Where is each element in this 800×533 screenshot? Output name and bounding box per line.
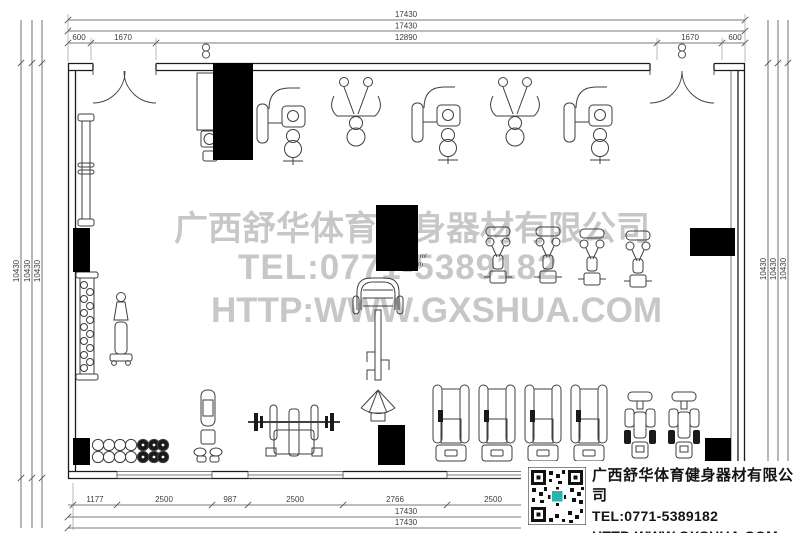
treadmill-icon [525, 385, 561, 461]
columns [73, 63, 735, 465]
dim-bottom-2500-c: 2500 [484, 495, 502, 504]
door-left [93, 71, 156, 103]
multi-station-rack-icon [353, 278, 403, 421]
treadmill-icon [571, 385, 607, 461]
dim-top-600-l: 600 [72, 33, 86, 42]
dim-top-17430-a: 17430 [395, 10, 418, 19]
exercise-bike-icon [624, 392, 656, 458]
dim-top-600-r: 600 [728, 33, 742, 42]
company-tel: TEL:0771-5389182 [592, 506, 800, 526]
column [73, 438, 90, 465]
dim-bottom-17430-b: 17430 [395, 518, 418, 527]
area-label-sup: m² [420, 254, 427, 260]
dim-bottom-2500-b: 2500 [286, 495, 304, 504]
door-marker-icon-left [202, 44, 209, 58]
dim-bottom-2766: 2766 [386, 495, 404, 504]
column [376, 205, 418, 271]
strength-machine-icon [564, 87, 612, 164]
seated-machine-icon [578, 229, 606, 285]
column [378, 425, 405, 465]
strength-machine-icon [257, 88, 305, 165]
column [213, 63, 253, 160]
dumbbell-rack-icon [92, 439, 168, 462]
seated-machine-icon [624, 231, 652, 287]
dim-top-1670-l: 1670 [114, 33, 132, 42]
seated-machine-icon [534, 227, 562, 283]
dim-left-10430-b: 10430 [23, 259, 32, 282]
dim-left-10430-a: 10430 [12, 259, 21, 282]
strength-machine-icon [491, 78, 540, 147]
dim-right-10430-a: 10430 [759, 257, 768, 280]
column [690, 228, 735, 256]
treadmill-icon [433, 385, 469, 461]
floor-plan-drawing: 17430 17430 600 1670 12890 1670 600 1043… [0, 0, 800, 533]
qr-code-icon [528, 467, 586, 525]
strength-machine-icon [332, 78, 381, 147]
floor-plan-page: 广西舒华体育健身器材有限公司 TEL:0771-5389182 HTTP:WWW… [0, 0, 800, 533]
dim-right-10430-c: 10430 [779, 257, 788, 280]
area-annotation: m² m [418, 254, 427, 268]
dim-top-17430-b: 17430 [395, 22, 418, 31]
heavy-bag-icon [110, 293, 132, 366]
bench-press-icon [248, 405, 340, 456]
door-marker-icon-right [678, 44, 685, 58]
company-url: HTTP:WWW.GXSHUA.COM [592, 526, 800, 533]
area-label-sub: m [418, 262, 423, 268]
dim-bottom-1177: 1177 [86, 495, 104, 504]
dim-top-12890: 12890 [395, 33, 418, 42]
dim-top-1670-r: 1670 [681, 33, 699, 42]
exercise-bike-icon [668, 392, 700, 458]
dim-left-10430-c: 10430 [33, 259, 42, 282]
leg-machine-icon [194, 390, 222, 462]
company-name: 广西舒华体育健身器材有限公司 [592, 466, 800, 506]
plate-rack-icon [76, 272, 98, 380]
dim-bottom-987: 987 [223, 495, 237, 504]
company-info-block: 广西舒华体育健身器材有限公司 TEL:0771-5389182 HTTP:WWW… [521, 461, 800, 533]
strength-machine-icon [412, 87, 460, 164]
dim-right-10430-b: 10430 [769, 257, 778, 280]
treadmill-icon [479, 385, 515, 461]
column [73, 228, 90, 272]
dim-bottom-2500-a: 2500 [155, 495, 173, 504]
dim-bottom-17430-a: 17430 [395, 507, 418, 516]
door-right [650, 71, 714, 103]
windows [117, 472, 540, 479]
barbell-rack-icon [78, 114, 94, 226]
seated-machine-icon [484, 227, 512, 283]
